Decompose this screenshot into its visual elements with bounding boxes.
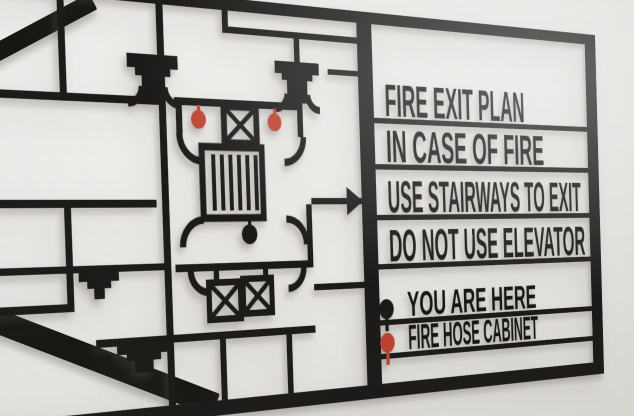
instruction-line-4: DO NOT USE ELEVATOR <box>388 218 586 271</box>
corner-flare <box>286 219 306 245</box>
sign-graphic: FIRE EXIT PLAN IN CASE OF FIRE USE STAIR… <box>0 0 604 416</box>
instruction-line-3: USE STAIRWAYS TO EXIT <box>387 172 582 223</box>
fire-exit-plan-sign: FIRE EXIT PLAN IN CASE OF FIRE USE STAIR… <box>0 0 604 416</box>
text-panel: FIRE EXIT PLAN IN CASE OF FIRE USE STAIR… <box>372 74 593 365</box>
legend-label-fire-hose-cabinet: FIRE HOSE CABINET <box>408 309 539 357</box>
plan-wall-line <box>56 0 67 96</box>
plan-wall-line <box>0 304 75 325</box>
you-are-here-pin-icon <box>379 299 394 332</box>
plan-wall-line <box>314 282 366 291</box>
stair-x-box-icon <box>223 106 257 144</box>
column-capital <box>126 53 179 105</box>
plan-wall-line <box>294 39 300 64</box>
elevator-x-box-icon <box>243 278 273 314</box>
wall-photo: FIRE EXIT PLAN IN CASE OF FIRE USE STAIR… <box>0 0 634 416</box>
plan-wall-line <box>222 26 365 45</box>
column-bracket <box>117 343 171 375</box>
plan-corridor-line <box>0 200 157 209</box>
frame-divider-bar <box>356 11 383 399</box>
instruction-line-2: IN CASE OF FIRE <box>385 121 544 174</box>
column-bracket <box>79 272 120 300</box>
plan-wall-line <box>306 204 313 260</box>
core-wall <box>297 110 303 137</box>
elevator-x-box-icon <box>209 282 242 320</box>
exit-direction-arrow-icon <box>346 187 363 215</box>
plan-wall-line <box>328 69 361 77</box>
elevator-core <box>93 260 317 413</box>
corner-flare <box>284 136 304 162</box>
floor-plan <box>0 0 375 416</box>
plan-wall-line <box>64 204 75 312</box>
fire-hose-pin-icon <box>380 332 395 365</box>
fire-hose-pin-icon <box>191 105 207 129</box>
stair-hatch-run-icon <box>201 147 263 219</box>
frame-bottom-bar <box>0 361 604 416</box>
corner-flare <box>182 220 205 247</box>
frame-right-bar <box>584 34 604 375</box>
core-wall <box>176 105 183 133</box>
you-are-here-pin-icon <box>241 218 257 245</box>
corner-flare <box>288 267 305 289</box>
column-capital <box>274 61 319 111</box>
